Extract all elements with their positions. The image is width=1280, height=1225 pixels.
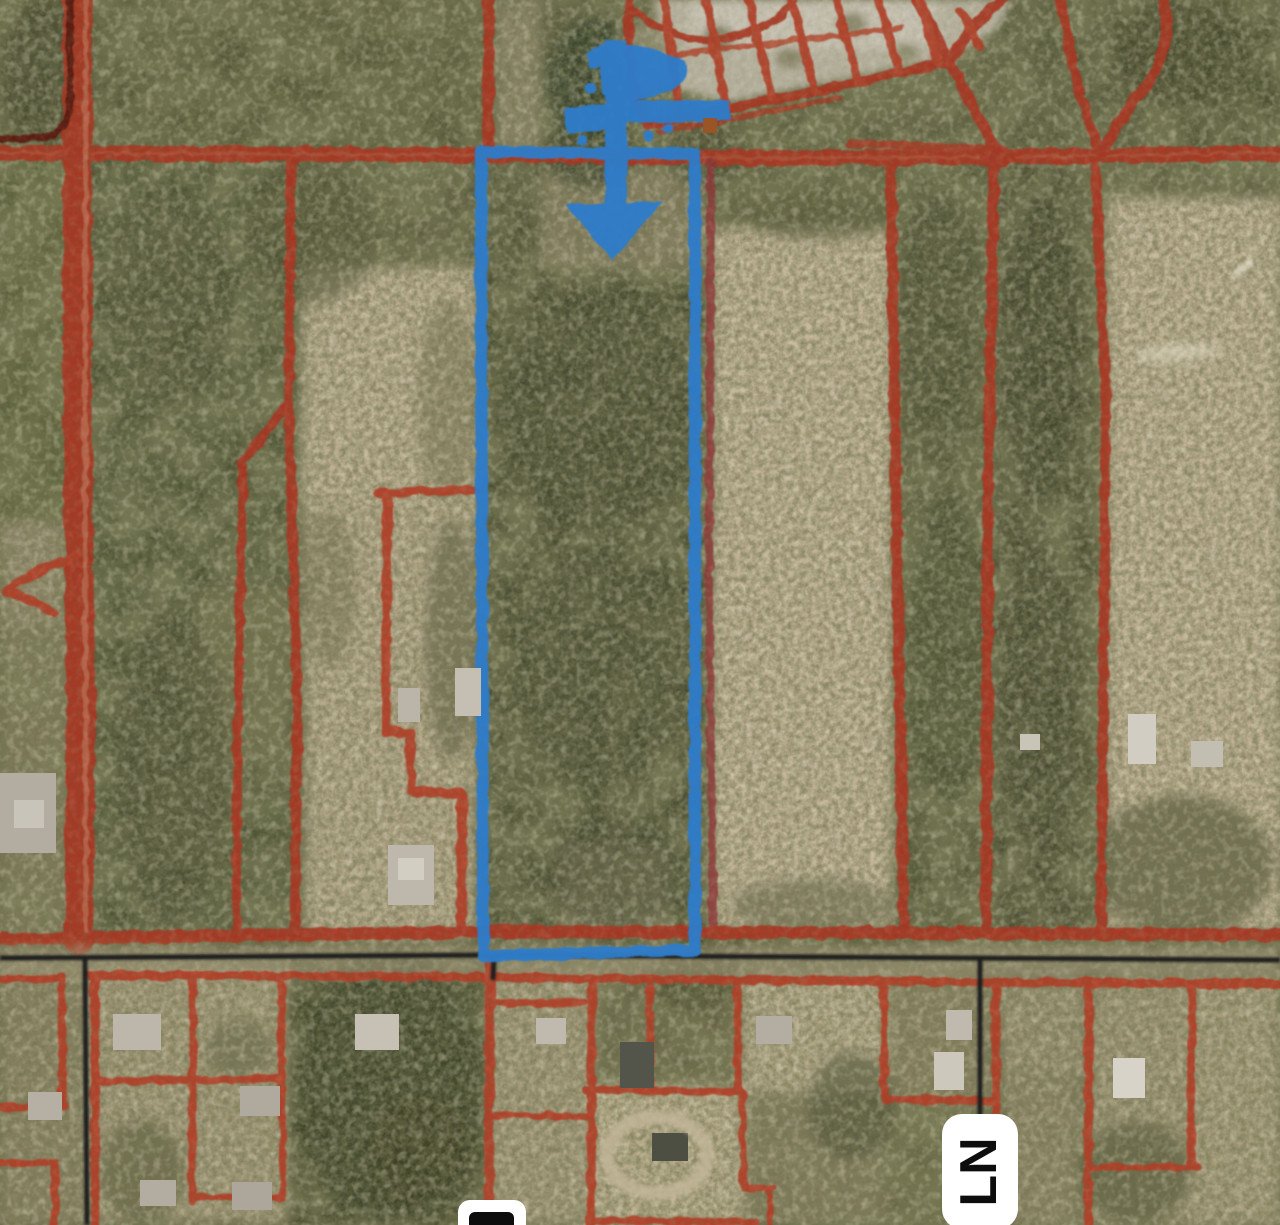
- svg-text:LN: LN: [950, 1137, 1008, 1206]
